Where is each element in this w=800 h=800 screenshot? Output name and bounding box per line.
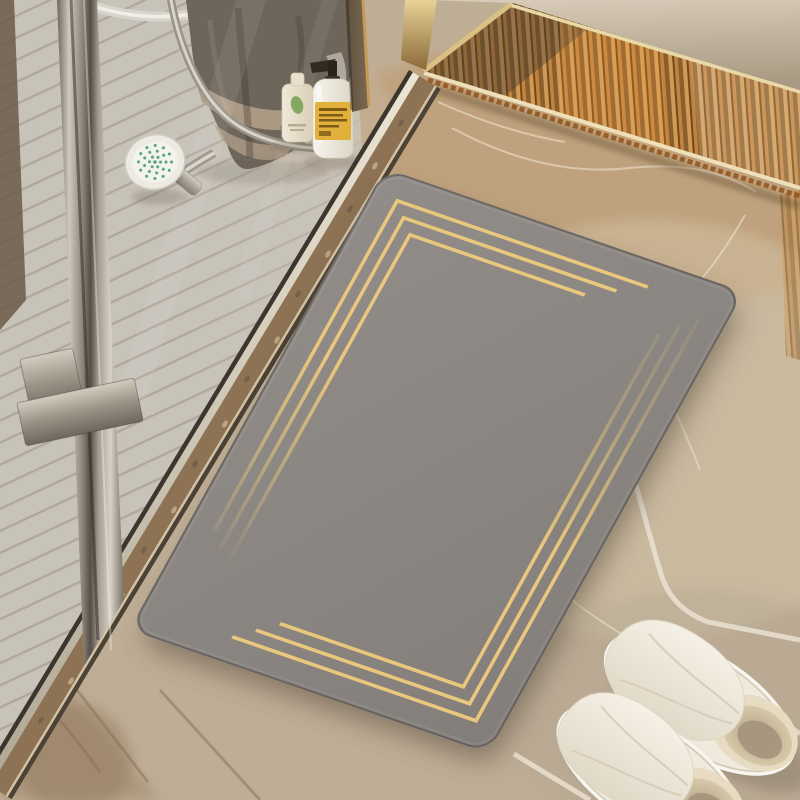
label-text-line (290, 129, 304, 131)
bathroom-scene (0, 0, 800, 800)
label-text-line (288, 124, 306, 127)
bottle-cap (291, 73, 304, 86)
